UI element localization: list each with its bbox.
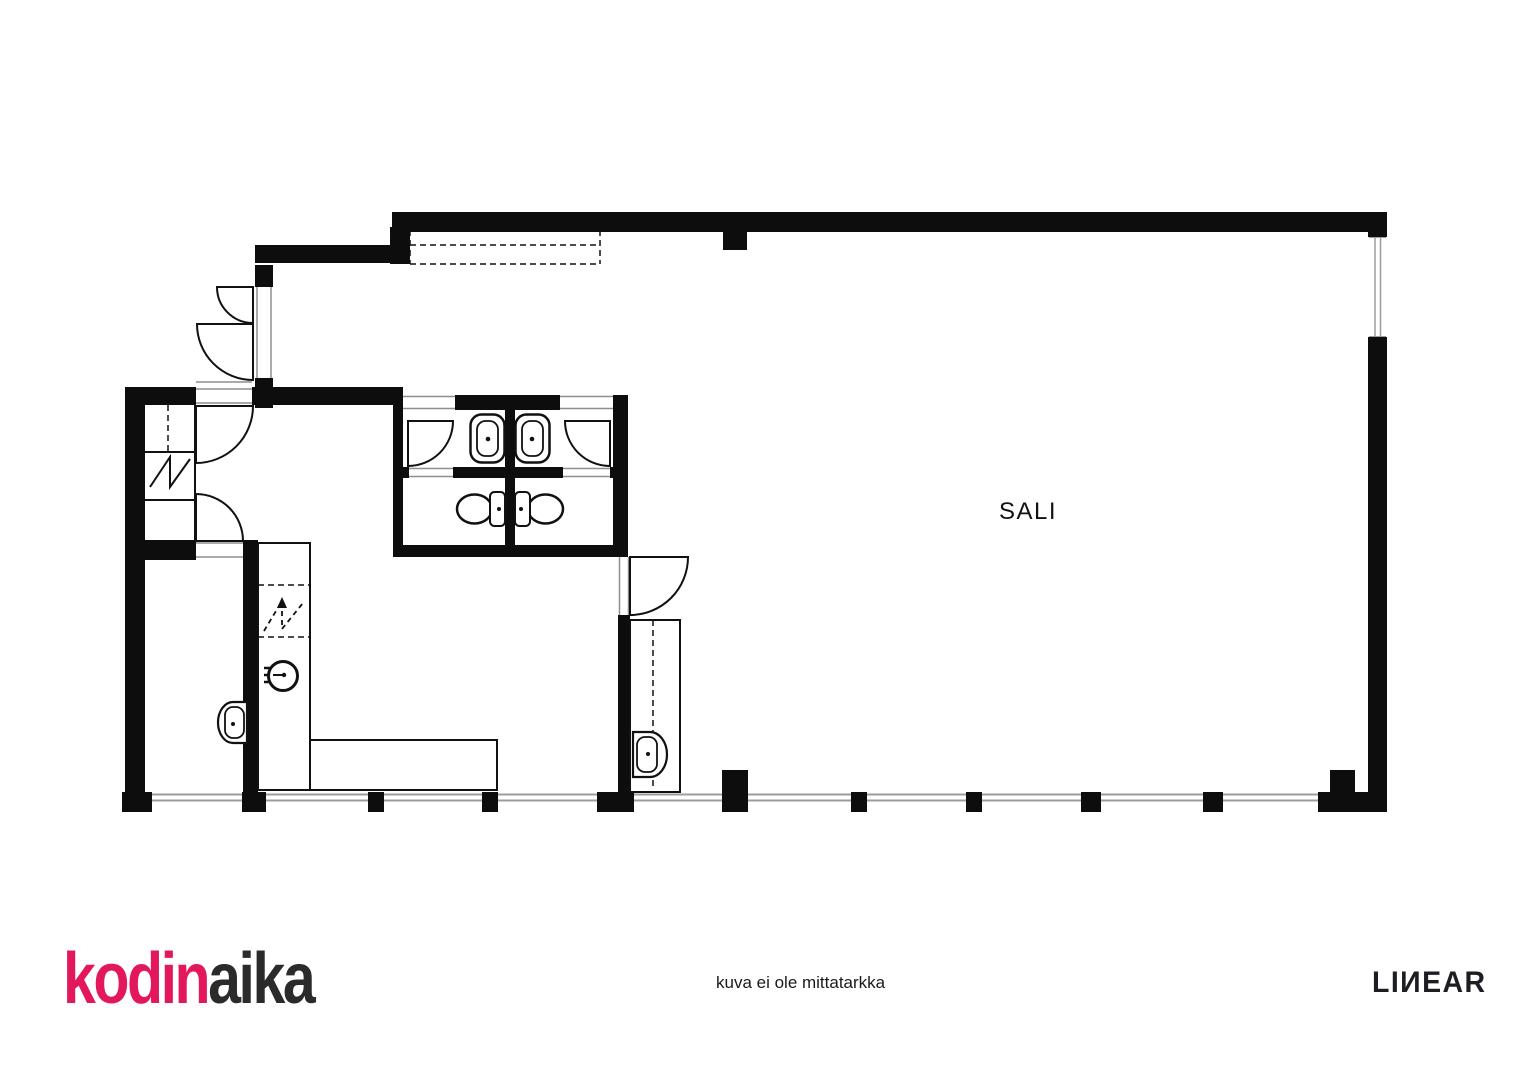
- east-window: [1368, 237, 1387, 337]
- walls: [122, 212, 1387, 812]
- sali-west-wall: [618, 615, 630, 792]
- facade-pillar-3: [482, 792, 498, 812]
- east-window-opening: [1368, 237, 1387, 337]
- entry-door-opening-2: [256, 323, 273, 378]
- west-top-wall-right: [252, 387, 403, 405]
- leftroom-door-swing: [196, 494, 243, 541]
- wc-right-door-swing: [565, 421, 610, 466]
- facade-pillar-10-tall: [1330, 770, 1355, 792]
- disclaimer-text: kuva ei ole mittatarkka: [716, 973, 885, 993]
- wc-mid-wall-c: [610, 467, 628, 478]
- room-label-sali: SALI: [999, 498, 1057, 525]
- wc-left-stall-opening: [409, 468, 453, 477]
- washbasin-niche-icon: [633, 732, 667, 777]
- facade-pillar-6: [851, 792, 867, 812]
- washbasin-leftroom-icon: [218, 702, 247, 743]
- leftroom-divider-wall: [243, 540, 258, 792]
- wc-sink-left-icon: [471, 415, 505, 463]
- entry-door-opening-1: [256, 287, 273, 323]
- floorplan-drawing: SALI: [0, 0, 1527, 1080]
- wc-bottom-wall: [393, 545, 628, 557]
- southwest-corner: [122, 792, 152, 812]
- logo-text-primary: kodin: [63, 939, 208, 1019]
- leftroom-door-opening: [196, 542, 243, 559]
- facade-pillar-5-tall: [722, 770, 748, 812]
- facade-pillar-8: [1081, 792, 1101, 812]
- north-wall: [392, 212, 1387, 232]
- hall-door-swing: [196, 406, 253, 463]
- southeast-corner: [1318, 792, 1387, 812]
- kodinaika-logo: kodinaika: [63, 941, 313, 1017]
- sali-door-swing: [630, 557, 688, 615]
- north-pillar: [723, 212, 747, 250]
- toilet-left-icon: [457, 492, 505, 526]
- entry-door-swing-1: [217, 287, 253, 323]
- entry-top-wall: [255, 245, 406, 263]
- logo-text-secondary: aika: [208, 939, 313, 1019]
- wc-right-entrance-opening: [560, 396, 613, 409]
- facade-pillar-9: [1203, 792, 1223, 812]
- entry-west-wall-upper: [255, 265, 273, 287]
- hall-door-opening: [196, 388, 252, 404]
- facade-pillar-4: [597, 792, 634, 812]
- electrical-zigzag-icon: [150, 457, 190, 487]
- floorplan-page: SALI kodinaika kuva ei ole mittatarkka L…: [0, 0, 1527, 1080]
- facade-pillar-7: [966, 792, 982, 812]
- wc-left-entrance-opening: [403, 396, 455, 409]
- toilet-right-icon: [515, 492, 563, 526]
- wc-mid-wall-a: [393, 467, 409, 478]
- linear-logo: LIИEAR: [1372, 966, 1487, 1000]
- entry-door-swing-2: [197, 324, 253, 380]
- kitchen-counter-bottom: [310, 740, 497, 790]
- leftroom-top-wall: [145, 540, 196, 560]
- wc-left-door-swing: [408, 421, 453, 466]
- facade-pillar-2: [368, 792, 384, 812]
- facade-pillar-1: [242, 792, 266, 812]
- wc-right-stall-opening: [563, 468, 610, 477]
- wc-sink-right-icon: [516, 415, 550, 463]
- wc-mid-wall-b: [453, 467, 563, 478]
- west-wall: [125, 387, 145, 812]
